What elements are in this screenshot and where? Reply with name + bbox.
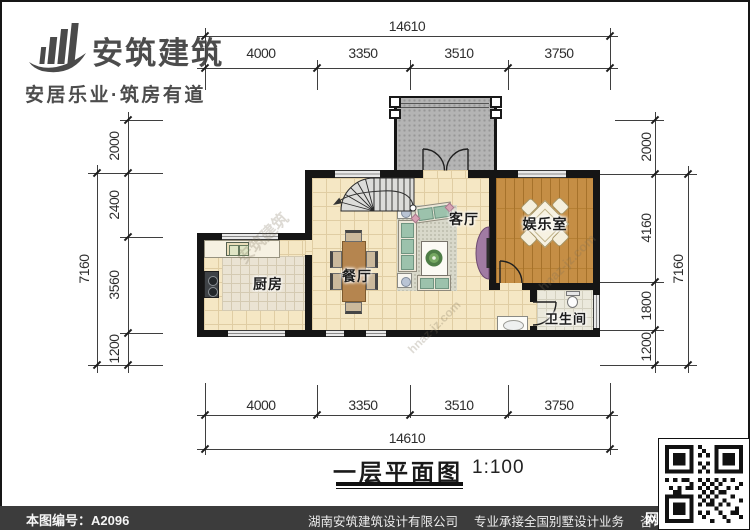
kitchen-sink: [226, 242, 249, 256]
dim-label: 14610: [389, 18, 425, 34]
dim-label: 3350: [348, 45, 377, 61]
extension-line: [205, 28, 206, 90]
room-label-entertainment: 娱乐室: [523, 214, 568, 234]
dim-label: 1200: [106, 334, 122, 363]
toilet-bowl: [567, 296, 578, 308]
wall-segment: [530, 290, 537, 302]
porch-column: [490, 109, 502, 119]
room-label-kitchen: 厨房: [253, 274, 283, 294]
dim-line: [688, 166, 689, 373]
dim-label: 7160: [76, 254, 92, 283]
footer-company: 湖南安筑建筑设计有限公司: [308, 511, 458, 530]
dim-label: 3560: [106, 270, 122, 299]
entry-threshold: [423, 170, 468, 178]
dim-label: 1800: [638, 291, 654, 320]
dim-line: [655, 112, 656, 373]
room-label-dining: 餐厅: [342, 266, 372, 286]
qr-code: [658, 438, 750, 530]
wall-segment: [305, 170, 312, 237]
dim-line: [197, 36, 618, 37]
dim-label: 3510: [444, 397, 473, 413]
room-label-bathroom: 卫生间: [545, 309, 587, 328]
extension-line: [600, 365, 697, 366]
company-logo-icon: [26, 20, 90, 76]
wall-segment: [305, 255, 312, 337]
porch-step-line: [401, 103, 489, 104]
sofa-cushion: [401, 255, 414, 270]
title-underline: [336, 482, 463, 486]
sofa-cushion: [401, 223, 414, 238]
wall-segment: [197, 233, 204, 337]
extension-line: [600, 174, 697, 175]
extension-line: [610, 383, 611, 455]
side-table: [397, 273, 412, 288]
window: [222, 233, 278, 240]
footer-service: 专业承接全国别墅设计业务: [474, 511, 624, 530]
lamp: [401, 277, 411, 287]
sofa-cushion: [435, 278, 449, 289]
extension-line: [610, 28, 611, 90]
lamp: [401, 208, 411, 218]
room-label-living: 客厅: [449, 209, 479, 229]
sofa-cushion: [401, 239, 414, 254]
dim-label: 1200: [638, 332, 654, 361]
sink-basin: [239, 245, 249, 256]
porch-column: [389, 109, 401, 119]
qr-pattern: [665, 445, 743, 523]
dim-label: 2000: [638, 132, 654, 161]
drawing-sheet: 安筑建筑 安居乐业·筑房有道 14610 4000 3350 3510 3750…: [0, 0, 750, 530]
dim-label: 7160: [670, 254, 686, 283]
washbasin-counter: [497, 316, 528, 331]
window: [366, 330, 386, 337]
plan-scale: 1:100: [472, 457, 525, 479]
dim-line: [97, 165, 98, 373]
dining-chair: [330, 273, 342, 290]
window: [593, 295, 600, 328]
burner: [208, 276, 218, 286]
side-table: [397, 204, 412, 219]
dim-label: 14610: [389, 430, 425, 446]
dim-label: 3510: [444, 45, 473, 61]
window: [326, 330, 344, 337]
porch-wall: [394, 96, 497, 98]
porch-step-line: [401, 107, 489, 108]
dim-label: 3750: [544, 45, 573, 61]
wall-segment: [489, 178, 496, 283]
stove: [204, 271, 219, 298]
dim-label: 4000: [246, 397, 275, 413]
wall-segment: [530, 326, 537, 337]
dim-label: 2400: [106, 190, 122, 219]
sheet-number: 本图编号：A2096: [26, 510, 129, 529]
porch-floor: [397, 98, 494, 170]
dim-label: 4000: [246, 45, 275, 61]
sofa-cushion: [420, 278, 434, 289]
wall-segment: [397, 170, 423, 178]
wall-segment: [468, 170, 494, 178]
sofa-three-seat: [398, 220, 417, 272]
title-underline-thin: [336, 488, 463, 489]
extension-line: [205, 383, 206, 455]
porch-column: [490, 96, 502, 108]
burner: [208, 287, 218, 297]
dim-label: 2000: [106, 131, 122, 160]
wall-segment: [489, 283, 500, 290]
wall-segment: [305, 330, 600, 337]
company-tagline: 安居乐业·筑房有道: [25, 80, 206, 107]
dining-chair: [345, 302, 362, 314]
extension-line: [615, 120, 664, 121]
dim-line: [197, 449, 618, 450]
sink-basin: [229, 245, 239, 256]
window: [518, 170, 566, 178]
dining-chair: [345, 230, 362, 242]
dim-label: 4160: [638, 213, 654, 242]
sofa-bench: [417, 275, 451, 291]
footer-web-char: 网: [645, 509, 659, 529]
wall-segment: [522, 283, 600, 290]
dining-chair: [330, 251, 342, 268]
coffee-table: [421, 241, 448, 276]
porch-column: [389, 96, 401, 108]
window: [228, 330, 285, 337]
dim-label: 3350: [348, 397, 377, 413]
window: [335, 170, 380, 178]
dim-label: 3750: [544, 397, 573, 413]
